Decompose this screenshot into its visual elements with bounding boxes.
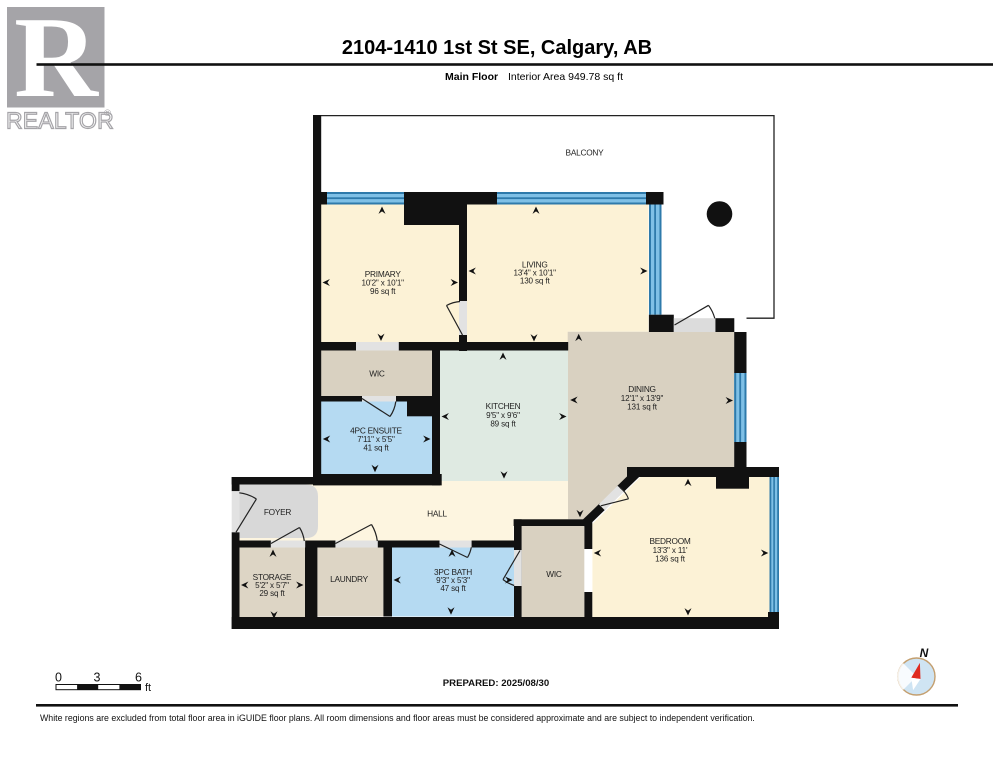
svg-text:0: 0: [55, 671, 62, 685]
svg-text:®: ®: [104, 108, 111, 119]
svg-text:White regions are excluded fro: White regions are excluded from total fl…: [40, 713, 755, 723]
svg-text:PREPARED: 2025/08/30: PREPARED: 2025/08/30: [443, 678, 549, 689]
svg-text:131 sq ft: 131 sq ft: [627, 403, 658, 412]
svg-text:130 sq ft: 130 sq ft: [520, 277, 551, 286]
svg-text:BEDROOM: BEDROOM: [649, 536, 690, 546]
svg-text:Main Floor: Main Floor: [445, 71, 498, 83]
svg-text:6: 6: [135, 671, 142, 685]
svg-text:N: N: [920, 646, 929, 660]
svg-text:3: 3: [94, 671, 101, 685]
svg-text:96 sq ft: 96 sq ft: [370, 287, 396, 296]
svg-text:LAUNDRY: LAUNDRY: [330, 574, 368, 584]
svg-text:29 sq ft: 29 sq ft: [259, 589, 285, 598]
svg-text:WIC: WIC: [369, 369, 385, 379]
svg-text:9'5" x 9'6": 9'5" x 9'6": [486, 411, 520, 420]
svg-text:FOYER: FOYER: [264, 507, 292, 517]
svg-text:136 sq ft: 136 sq ft: [655, 554, 686, 563]
svg-text:HALL: HALL: [427, 509, 447, 519]
svg-text:PRIMARY: PRIMARY: [365, 269, 402, 279]
svg-text:89 sq ft: 89 sq ft: [490, 420, 516, 429]
svg-text:WIC: WIC: [546, 569, 562, 579]
svg-text:R: R: [14, 0, 99, 122]
svg-text:2104-1410 1st St SE, Calgary,: 2104-1410 1st St SE, Calgary, AB: [342, 37, 652, 59]
svg-text:47 sq ft: 47 sq ft: [440, 584, 466, 593]
svg-text:Interior Area 949.78 sq ft: Interior Area 949.78 sq ft: [508, 71, 623, 83]
svg-text:REALTOR: REALTOR: [6, 108, 114, 134]
svg-text:12'1" x 13'9": 12'1" x 13'9": [621, 394, 664, 403]
svg-text:KITCHEN: KITCHEN: [486, 401, 521, 411]
svg-text:41 sq ft: 41 sq ft: [363, 443, 389, 452]
svg-text:BALCONY: BALCONY: [566, 148, 605, 158]
svg-text:ft: ft: [145, 682, 151, 694]
svg-text:DINING: DINING: [628, 384, 656, 394]
